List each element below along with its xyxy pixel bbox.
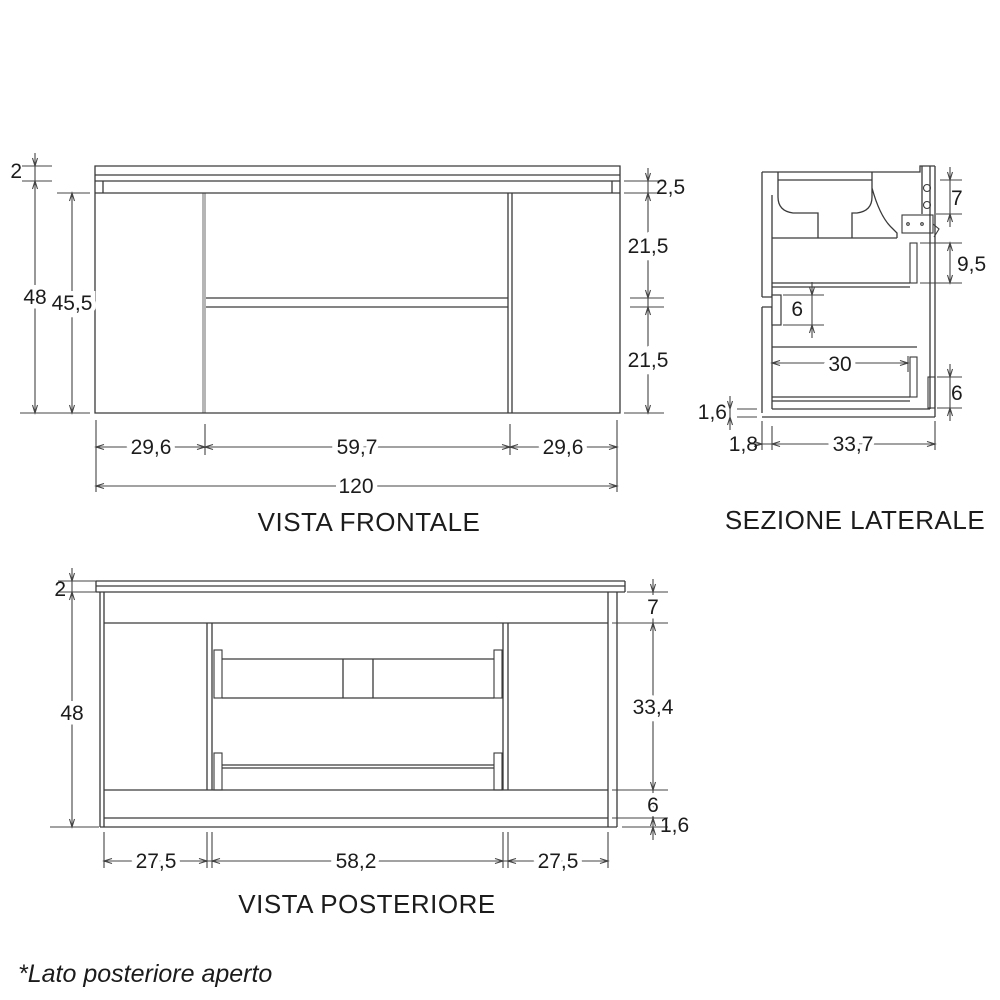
- rear-view-labels: 2 48 7 33,4 6 1,6 27,5 58,2 27,5 VISTA P…: [54, 578, 689, 919]
- bracket-hole-right: [921, 223, 924, 226]
- section-basin-profile: [772, 172, 897, 238]
- dim-rear-open-height: 33,4: [633, 696, 674, 719]
- dim-rear-top-thickness: 2: [54, 578, 66, 601]
- dim-section-back-height: 9,5: [957, 253, 986, 276]
- dim-section-bottom-rail: 6: [951, 382, 963, 405]
- dim-section-top-gap: 7: [951, 187, 963, 210]
- bottom-back-rail: [928, 377, 935, 408]
- front-view-drawing: [95, 166, 620, 413]
- section-view-labels: 7 9,5 6 30 6 1,6 1,8 33,7 SEZIONE LATERA…: [698, 187, 986, 535]
- footnote: *Lato posteriore aperto: [18, 960, 272, 988]
- dim-front-top-thickness: 2: [10, 160, 22, 183]
- dim-front-center-width: 59,7: [337, 436, 378, 459]
- dim-section-drawer-gap: 6: [791, 298, 803, 321]
- section-drawers: [762, 283, 935, 417]
- lower-drawer-slide: [910, 357, 917, 397]
- dim-rear-bottom-rail: 6: [647, 794, 659, 817]
- dim-rear-center-width: 58,2: [336, 850, 377, 873]
- section-outline: [762, 166, 935, 417]
- dim-rear-top-rail: 7: [647, 596, 659, 619]
- dim-section-slide-length: 30: [828, 353, 851, 376]
- drawer-gap-block: [772, 295, 781, 325]
- dim-rear-left-width: 27,5: [136, 850, 177, 873]
- dim-front-right-width: 29,6: [543, 436, 584, 459]
- lower-bar-left-tab: [214, 753, 222, 790]
- dim-front-drawer-upper: 21,5: [628, 235, 669, 258]
- upper-bar-left-tab: [214, 650, 222, 698]
- rear-view-caption: VISTA POSTERIORE: [238, 889, 495, 919]
- dim-rear-right-width: 27,5: [538, 850, 579, 873]
- dim-section-depth: 33,7: [833, 433, 874, 456]
- section-view-drawing: [762, 166, 939, 417]
- section-view-caption: SEZIONE LATERALE: [725, 505, 985, 535]
- bracket-hole-left: [907, 223, 910, 226]
- front-view-caption: VISTA FRONTALE: [258, 507, 481, 537]
- front-cabinet-outline: [95, 166, 620, 413]
- front-view-labels: 2 48 45,5 2,5 21,5 21,5 29,6 59,7 29,6 1…: [10, 160, 685, 537]
- dim-rear-bottom-panel: 1,6: [660, 814, 689, 837]
- lower-bar-right-tab: [494, 753, 502, 790]
- dim-front-top-rail: 2,5: [656, 176, 685, 199]
- dim-front-total-width: 120: [338, 475, 373, 498]
- dim-section-bottom-panel: 1,6: [698, 401, 727, 424]
- upper-bar-right-tab: [494, 650, 502, 698]
- bracket-hook: [933, 224, 939, 237]
- dim-front-drawer-lower: 21,5: [628, 349, 669, 372]
- dim-front-door-height: 45,5: [52, 292, 93, 315]
- front-left-divider: [202, 193, 206, 413]
- dim-front-left-width: 29,6: [131, 436, 172, 459]
- drawing-canvas: 2 48 45,5 2,5 21,5 21,5 29,6 59,7 29,6 1…: [0, 0, 1000, 1000]
- technical-drawing-page: 2 48 45,5 2,5 21,5 21,5 29,6 59,7 29,6 1…: [0, 0, 1000, 1000]
- rear-view-drawing: [96, 581, 625, 827]
- dim-front-body-height: 48: [23, 286, 46, 309]
- rear-cabinet-outline: [96, 581, 625, 827]
- dim-section-front-thickness: 1,8: [729, 433, 758, 456]
- upper-drawer-slide: [910, 243, 917, 283]
- dim-rear-body-height: 48: [60, 702, 83, 725]
